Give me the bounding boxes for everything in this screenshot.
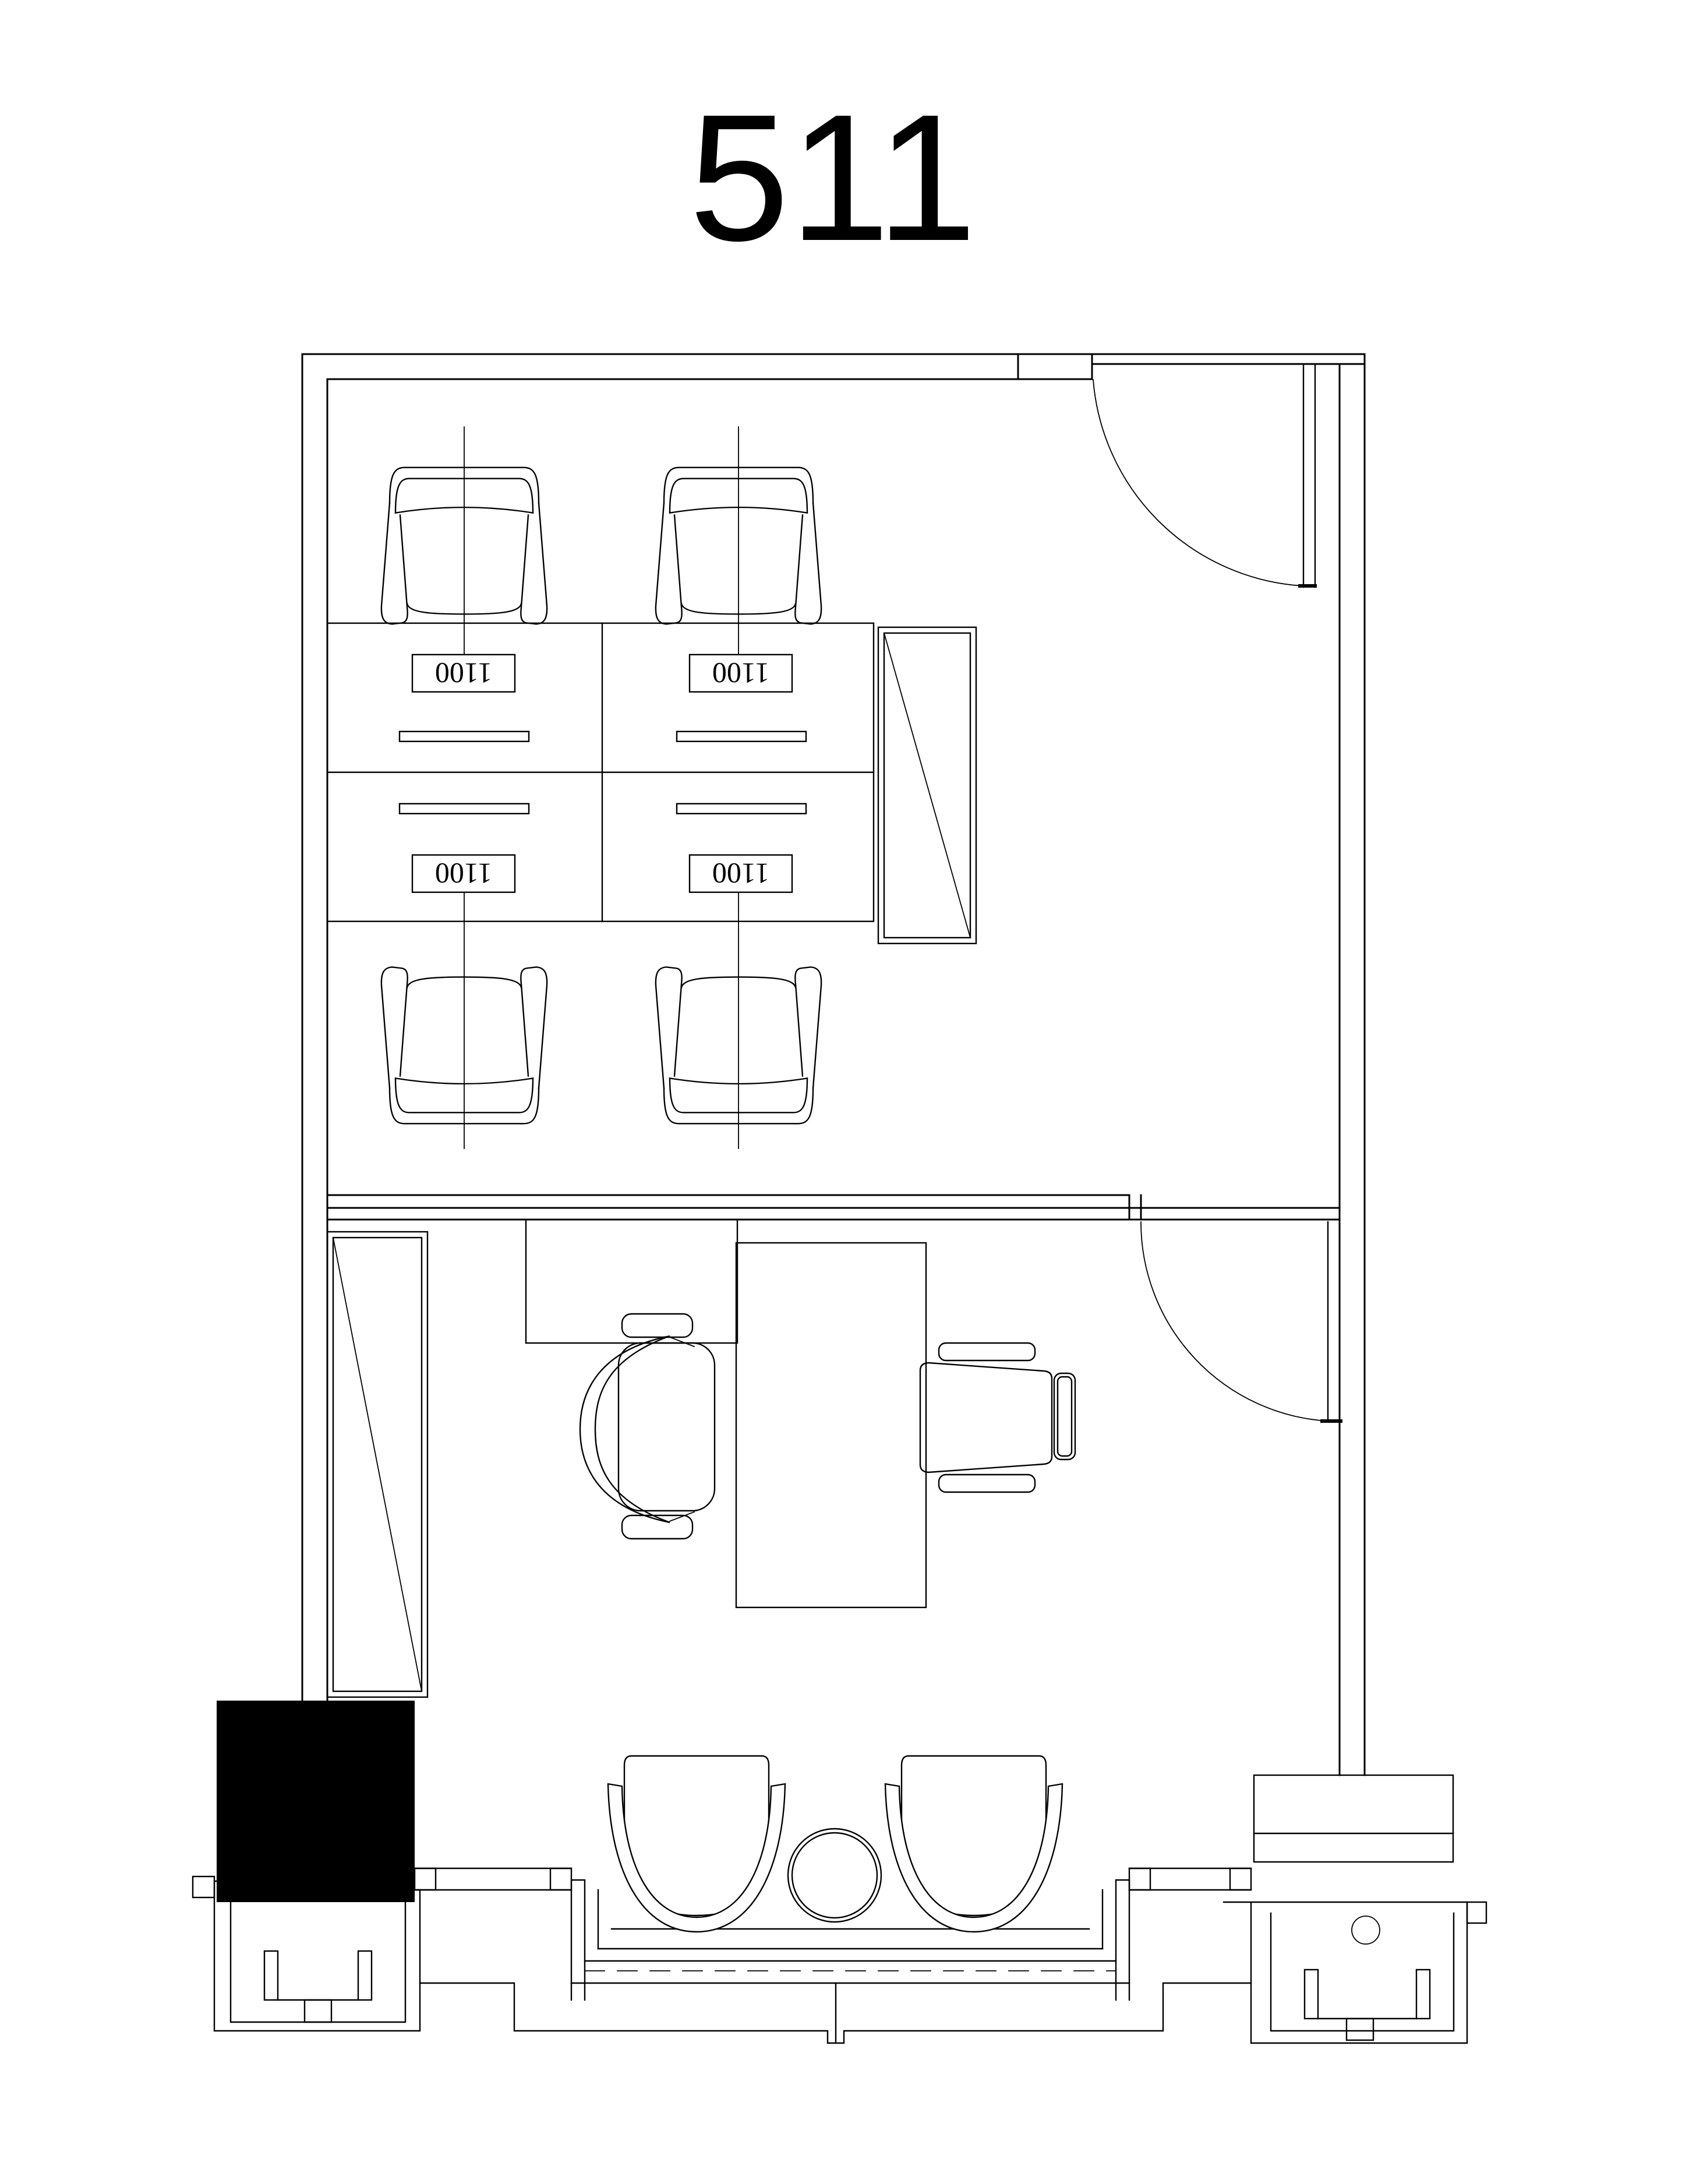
balcony-table (788, 1829, 881, 1922)
unit-number-title: 511 (689, 76, 977, 278)
desk-label: 1100 (712, 657, 769, 690)
desk-label: 1100 (435, 857, 492, 890)
floor-plan-sheet: 511 (0, 0, 1689, 2184)
black-column (217, 1701, 415, 1902)
desk-label: 1100 (435, 657, 492, 690)
desk-label: 1100 (712, 857, 769, 890)
